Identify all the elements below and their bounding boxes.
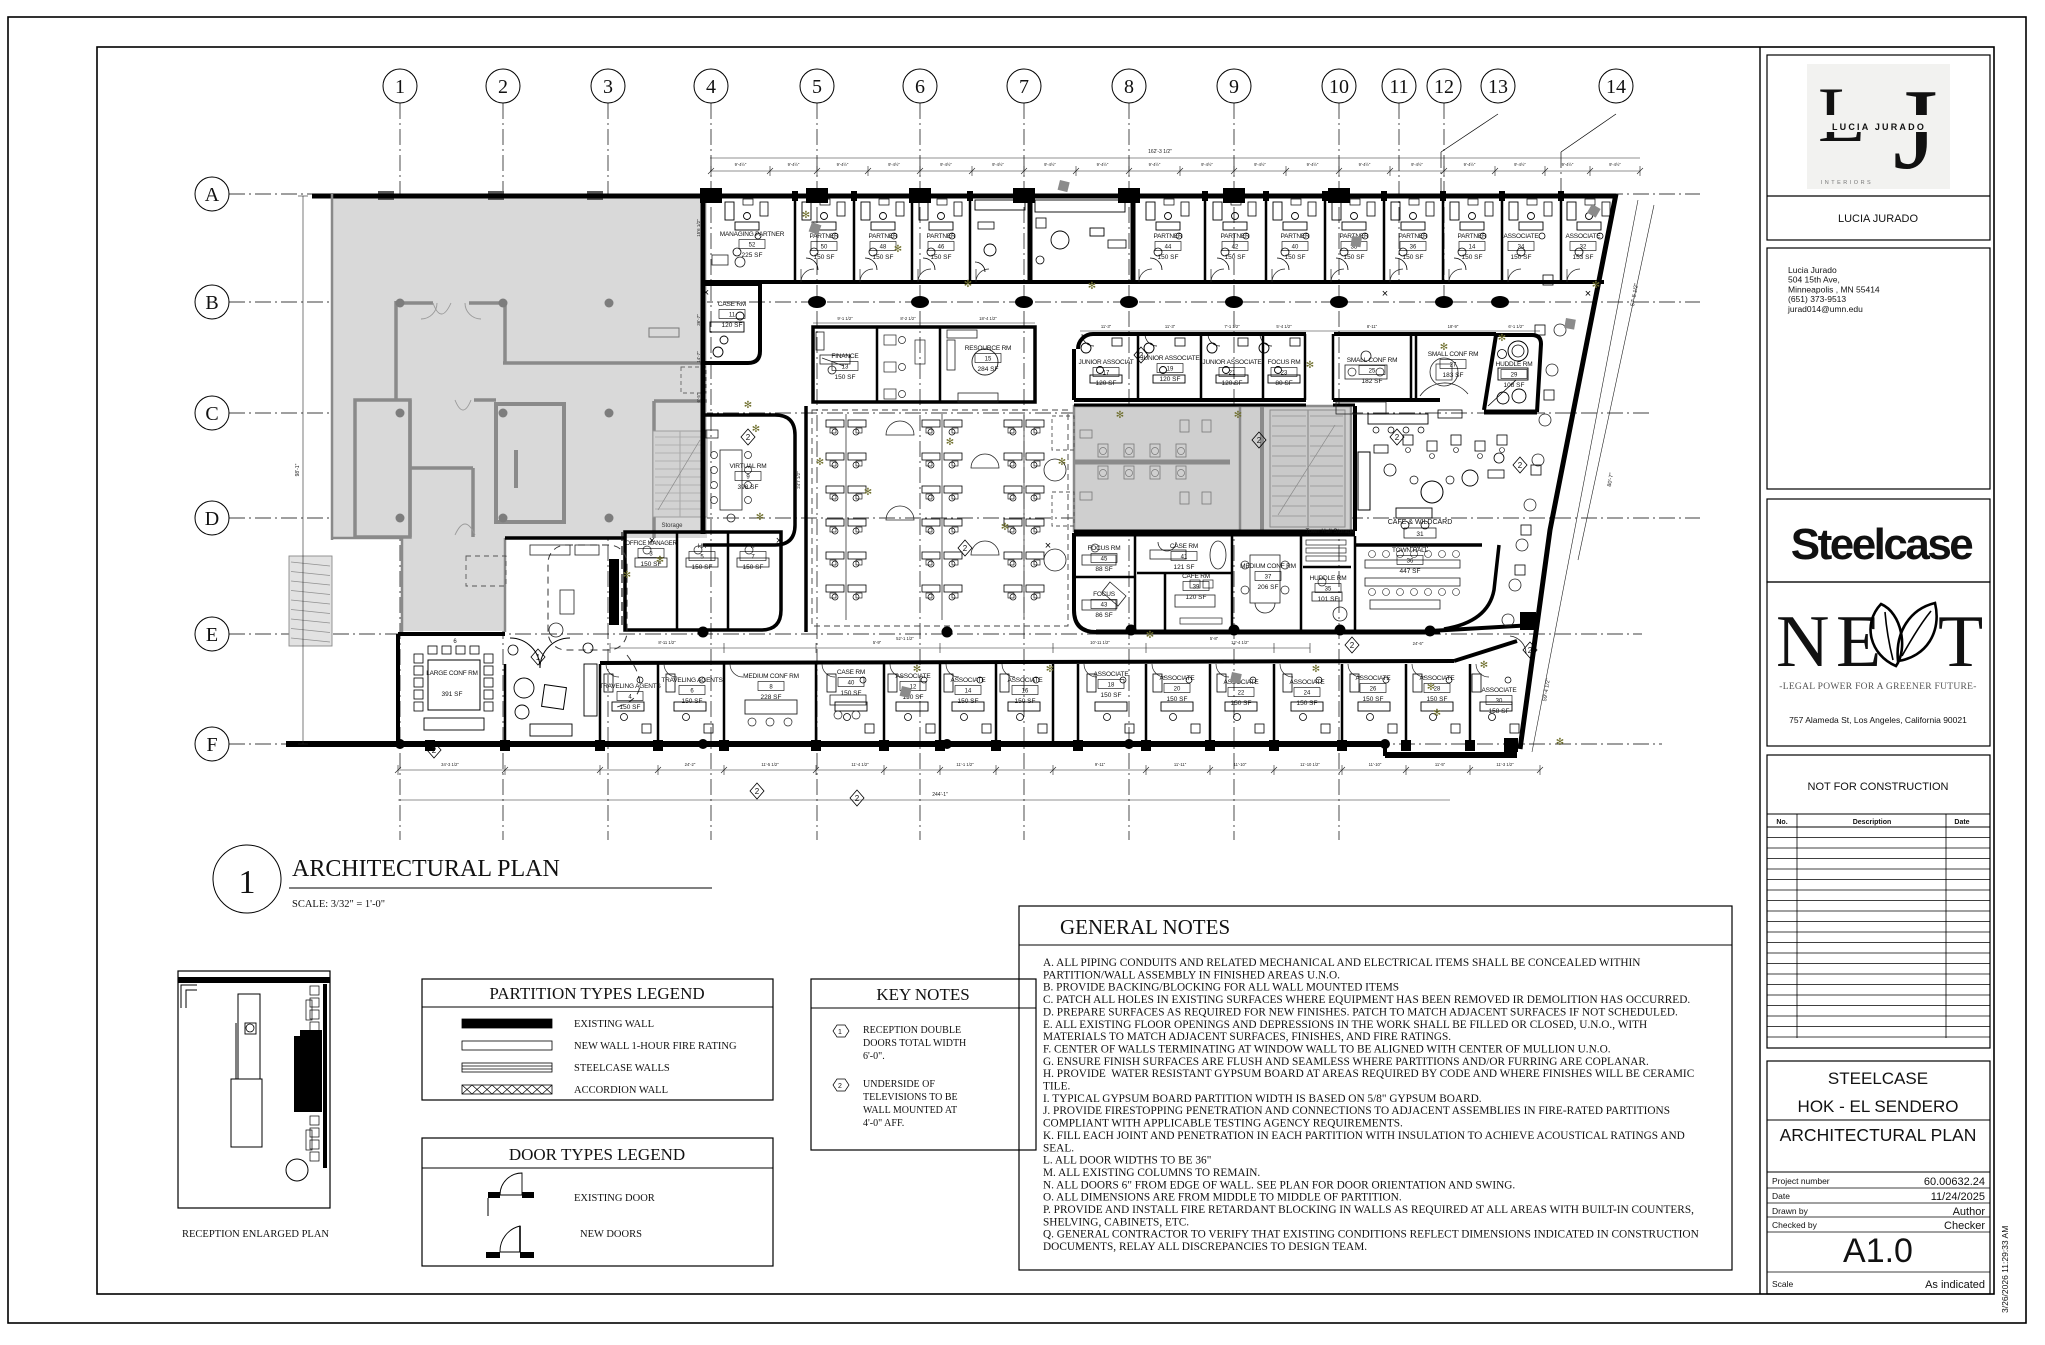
svg-text:✻: ✻ [1001, 522, 1009, 533]
svg-text:108 SF: 108 SF [1504, 382, 1525, 389]
svg-text:1: 1 [395, 76, 405, 98]
svg-text:✻: ✻ [1312, 664, 1320, 675]
svg-text:3: 3 [603, 76, 613, 98]
svg-text:ASSOCIATE: ASSOCIATE [1420, 675, 1456, 682]
svg-text:G. ENSURE FINISH SURFACES ARE: G. ENSURE FINISH SURFACES ARE FLUSH AND … [1043, 1056, 1649, 1068]
svg-text:Scale: Scale [1772, 1279, 1794, 1289]
svg-text:EXISTING WALL: EXISTING WALL [574, 1019, 654, 1030]
svg-text:101 SF: 101 SF [1318, 596, 1339, 603]
svg-text:SEAL.: SEAL. [1043, 1142, 1074, 1154]
svg-text:150 SF: 150 SF [1462, 254, 1483, 261]
svg-text:CASE RM: CASE RM [718, 301, 746, 308]
svg-text:8: 8 [1124, 76, 1134, 98]
svg-text:CASE RM: CASE RM [837, 669, 865, 676]
svg-text:8'-2 1/2": 8'-2 1/2" [900, 316, 916, 321]
svg-text:A. ALL PIPING CONDUITS AND REL: A. ALL PIPING CONDUITS AND RELATED MECHA… [1043, 957, 1640, 969]
svg-text:ASSOCIATE: ASSOCIATE [1008, 677, 1044, 684]
svg-text:✻: ✻ [1427, 682, 1435, 693]
svg-text:PARTNER: PARTNER [1153, 233, 1183, 240]
svg-text:ASSOCIATE: ASSOCIATE [1482, 687, 1518, 694]
svg-text:40: 40 [1292, 245, 1299, 251]
svg-text:6: 6 [690, 689, 694, 695]
svg-text:N. ALL DOORS 6" FROM EDGE OF W: N. ALL DOORS 6" FROM EDGE OF WALL. SEE P… [1043, 1179, 1515, 1191]
svg-text:M. ALL EXISTING COLUMNS TO REM: M. ALL EXISTING COLUMNS TO REMAIN. [1043, 1167, 1260, 1179]
svg-text:14: 14 [1469, 245, 1476, 251]
svg-text:PARTITION TYPES LEGEND: PARTITION TYPES LEGEND [489, 984, 704, 1003]
svg-text:80 SF: 80 SF [1275, 380, 1292, 387]
svg-text:As indicated: As indicated [1925, 1279, 1985, 1291]
svg-text:IT: IT [751, 544, 756, 550]
svg-text:24: 24 [1304, 691, 1311, 697]
svg-text:Drawn by: Drawn by [1772, 1206, 1809, 1216]
svg-text:No.: No. [1776, 819, 1787, 826]
svg-text:PARTNER: PARTNER [809, 233, 839, 240]
svg-text:57'-5 1/2": 57'-5 1/2" [1630, 283, 1640, 307]
svg-text:24'7 1/2": 24'7 1/2" [796, 471, 801, 489]
svg-text:150 SF: 150 SF [1101, 692, 1122, 699]
svg-text:150 SF: 150 SF [1403, 254, 1424, 261]
svg-text:9'-4½": 9'-4½" [1514, 162, 1526, 167]
svg-text:C: C [205, 403, 218, 425]
svg-text:FOCUS RM: FOCUS RM [1267, 359, 1300, 366]
svg-text:20: 20 [1174, 687, 1181, 693]
svg-text:✻: ✻ [1440, 342, 1448, 353]
svg-text:17: 17 [1103, 371, 1110, 377]
svg-text:44: 44 [1165, 245, 1172, 251]
svg-text:NOT FOR CONSTRUCTION: NOT FOR CONSTRUCTION [1808, 781, 1949, 793]
svg-text:10: 10 [1329, 76, 1349, 98]
svg-text:PARTNER: PARTNER [1457, 233, 1487, 240]
svg-text:6: 6 [915, 76, 925, 98]
svg-text:✻: ✻ [894, 244, 902, 255]
svg-text:Description: Description [1853, 819, 1892, 826]
svg-text:MEDIUM CONF RM: MEDIUM CONF RM [743, 673, 799, 680]
svg-text:T: T [1938, 601, 1983, 683]
svg-text:1: 1 [536, 653, 541, 662]
svg-text:PARTNER: PARTNER [1220, 233, 1250, 240]
svg-text:9'-4½": 9'-4½" [1044, 162, 1056, 167]
svg-text:13: 13 [842, 365, 849, 371]
svg-text:11'-10": 11'-10" [1369, 762, 1382, 767]
svg-text:✻: ✻ [744, 400, 752, 411]
svg-text:11: 11 [729, 313, 736, 319]
svg-text:7: 7 [751, 555, 755, 561]
svg-text:PARTNER: PARTNER [868, 233, 898, 240]
svg-text:150 SF: 150 SF [1285, 254, 1306, 261]
svg-text:×: × [649, 535, 655, 547]
svg-text:2: 2 [432, 746, 437, 755]
svg-text:11'-3": 11'-3" [1165, 324, 1176, 329]
svg-text:11'-1 1/2": 11'-1 1/2" [956, 762, 974, 767]
svg-text:DOCUMENTS, RELAY ALL DISCREPAN: DOCUMENTS, RELAY ALL DISCREPANCIES TO DE… [1043, 1241, 1367, 1253]
svg-text:LUCIA JURADO: LUCIA JURADO [1832, 122, 1926, 132]
svg-text:E: E [206, 624, 218, 646]
svg-text:9'-4½": 9'-4½" [940, 162, 952, 167]
svg-text:I. TYPICAL GYPSUM BOARD PARTIT: I. TYPICAL GYPSUM BOARD PARTITION WIDTH … [1043, 1093, 1482, 1105]
svg-text:×: × [1382, 288, 1388, 300]
svg-text:Town Hall Storage: Town Hall Storage [1306, 529, 1355, 535]
svg-text:PARTNER: PARTNER [1398, 233, 1428, 240]
svg-text:6: 6 [453, 639, 457, 645]
svg-text:59'-4 1/2": 59'-4 1/2" [1542, 678, 1552, 702]
svg-text:MEDIUM CONF RM: MEDIUM CONF RM [1240, 563, 1296, 570]
svg-text:×: × [776, 535, 782, 547]
svg-text:HUDDLE RM: HUDDLE RM [1496, 361, 1533, 368]
svg-text:12'-4 1/2": 12'-4 1/2" [1231, 640, 1249, 645]
svg-text:✻: ✻ [752, 424, 760, 435]
svg-text:Steelcase: Steelcase [1791, 520, 1973, 569]
svg-text:DOORS TOTAL WIDTH: DOORS TOTAL WIDTH [863, 1038, 966, 1049]
svg-text:88 SF: 88 SF [1095, 566, 1112, 573]
svg-text:UNDERSIDE OF: UNDERSIDE OF [863, 1079, 935, 1090]
svg-text:J. PROVIDE FIRESTOPPING PENETR: J. PROVIDE FIRESTOPPING PENETRATION AND … [1043, 1105, 1670, 1117]
svg-text:11'-3": 11'-3" [1101, 324, 1112, 329]
svg-text:B. PROVIDE BACKING/BLOCKING FO: B. PROVIDE BACKING/BLOCKING FOR ALL WALL… [1043, 982, 1399, 994]
svg-text:4: 4 [706, 76, 716, 98]
svg-text:27: 27 [1450, 363, 1457, 369]
svg-text:×: × [703, 287, 709, 299]
svg-text:23: 23 [1281, 371, 1288, 377]
svg-text:16: 16 [1022, 689, 1029, 695]
svg-text:120 SF: 120 SF [1222, 380, 1243, 387]
svg-text:Date: Date [1772, 1191, 1790, 1201]
svg-text:10'-11 1/2": 10'-11 1/2" [1090, 640, 1110, 645]
svg-text:PARTNER: PARTNER [926, 233, 956, 240]
svg-text:9: 9 [1229, 76, 1239, 98]
svg-text:SHELVING, CABINETS, ETC.: SHELVING, CABINETS, ETC. [1043, 1216, 1189, 1228]
svg-text:11'-10 1/2": 11'-10 1/2" [1300, 762, 1320, 767]
svg-text:JUNIOR ASSOCIAT: JUNIOR ASSOCIAT [1078, 359, 1133, 366]
svg-text:48: 48 [880, 245, 887, 251]
svg-text:✻: ✻ [756, 512, 764, 523]
svg-text:✻: ✻ [1234, 410, 1242, 421]
svg-text:150 SF: 150 SF [692, 564, 713, 571]
svg-text:JUNIOR ASSOCIATE: JUNIOR ASSOCIATE [1202, 359, 1262, 366]
svg-text:MATERIALS TO MATCH ADJACENT SU: MATERIALS TO MATCH ADJACENT SURFACES, FI… [1043, 1031, 1451, 1043]
svg-text:LUCIA JURADO: LUCIA JURADO [1838, 213, 1919, 225]
svg-text:11'-5": 11'-5" [1435, 762, 1446, 767]
svg-text:21: 21 [1229, 371, 1236, 377]
svg-text:✻: ✻ [1306, 360, 1314, 371]
svg-text:120 SF: 120 SF [1186, 594, 1207, 601]
svg-text:11: 11 [1389, 76, 1408, 98]
svg-text:9'-4½": 9'-4½" [1411, 162, 1423, 167]
svg-text:150 SF: 150 SF [1511, 254, 1532, 261]
svg-text:EXISTING DOOR: EXISTING DOOR [574, 1193, 655, 1204]
svg-text:50: 50 [821, 245, 828, 251]
svg-text:52: 52 [749, 243, 756, 249]
svg-text:ACCORDION WALL: ACCORDION WALL [574, 1085, 668, 1096]
svg-text:32: 32 [1580, 245, 1587, 251]
svg-text:8'-11": 8'-11" [1367, 324, 1378, 329]
svg-text:150 SF: 150 SF [1225, 254, 1246, 261]
svg-text:ARCHITECTURAL PLAN: ARCHITECTURAL PLAN [1780, 1125, 1977, 1145]
svg-text:11'-3 1/2": 11'-3 1/2" [1496, 762, 1514, 767]
svg-text:150 SF: 150 SF [1363, 696, 1384, 703]
svg-text:9'-4½": 9'-4½" [888, 162, 900, 167]
svg-text:26: 26 [1370, 687, 1377, 693]
svg-text:N: N [1776, 601, 1829, 683]
svg-text:CASE RM: CASE RM [1170, 543, 1198, 550]
svg-text:Date: Date [1954, 819, 1969, 826]
svg-text:TOWN HALL: TOWN HALL [1392, 547, 1429, 554]
svg-text:24'-6": 24'-6" [1413, 641, 1424, 646]
svg-text:5: 5 [700, 555, 704, 561]
svg-text:2: 2 [1257, 436, 1262, 445]
svg-text:2: 2 [963, 544, 968, 553]
svg-text:MANAGING PARTNER: MANAGING PARTNER [720, 231, 785, 238]
svg-text:4'-0" AFF.: 4'-0" AFF. [863, 1118, 904, 1129]
svg-text:FOCUS RM: FOCUS RM [1087, 545, 1120, 552]
svg-text:120 SF: 120 SF [722, 322, 743, 329]
svg-text:35: 35 [1325, 587, 1332, 593]
svg-text:2: 2 [746, 433, 751, 442]
svg-text:RECEPTION DOUBLE: RECEPTION DOUBLE [863, 1025, 961, 1036]
svg-text:RECEPTION ENLARGED PLAN: RECEPTION ENLARGED PLAN [182, 1229, 329, 1240]
svg-text:14: 14 [965, 689, 972, 695]
svg-text:284 SF: 284 SF [978, 366, 999, 373]
svg-text:8: 8 [769, 685, 773, 691]
svg-text:KEY NOTES: KEY NOTES [876, 985, 969, 1004]
svg-text:391 SF: 391 SF [442, 691, 463, 698]
svg-text:ASSOCIATE: ASSOCIATE [1566, 233, 1602, 240]
svg-text:30: 30 [1496, 699, 1503, 705]
svg-text:206 SF: 206 SF [1258, 584, 1279, 591]
svg-text:✻: ✻ [1058, 457, 1066, 468]
svg-text:9'-4½": 9'-4½" [1201, 162, 1213, 167]
svg-text:✻: ✻ [1088, 281, 1096, 292]
svg-text:9'-4½": 9'-4½" [1359, 162, 1371, 167]
svg-text:150 SF: 150 SF [931, 254, 952, 261]
svg-text:120 SF: 120 SF [1160, 376, 1181, 383]
svg-text:29: 29 [1511, 373, 1518, 379]
svg-text:158 SF: 158 SF [1489, 708, 1510, 715]
svg-text:E. ALL EXISTING FLOOR OPENINGS: E. ALL EXISTING FLOOR OPENINGS AND DEPRE… [1043, 1019, 1647, 1031]
svg-text:13: 13 [1488, 76, 1508, 98]
svg-text:2: 2 [498, 76, 508, 98]
svg-text:46: 46 [938, 245, 945, 251]
svg-text:162'-3 1/2": 162'-3 1/2" [1148, 149, 1172, 155]
svg-text:41: 41 [1181, 555, 1188, 561]
svg-text:ASSOCIATE: ASSOCIATE [1504, 233, 1540, 240]
svg-text:5'-4 1/2": 5'-4 1/2" [1276, 324, 1292, 329]
svg-text:2: 2 [755, 787, 760, 796]
svg-text:HR: HR [698, 544, 707, 550]
svg-text:jurad014@umn.edu: jurad014@umn.edu [1787, 304, 1863, 314]
svg-text:9'-4½": 9'-4½" [1307, 162, 1319, 167]
svg-text:9'-4½": 9'-4½" [837, 162, 849, 167]
svg-text:F: F [206, 734, 217, 756]
svg-text:150 SF: 150 SF [1297, 700, 1318, 707]
svg-text:HOK - EL SENDERO: HOK - EL SENDERO [1798, 1097, 1959, 1116]
svg-text:45: 45 [1101, 557, 1108, 563]
svg-text:12: 12 [1434, 76, 1454, 98]
svg-text:225 SF: 225 SF [742, 252, 763, 259]
svg-text:34: 34 [1518, 245, 1525, 251]
svg-text:3: 3 [649, 552, 653, 558]
svg-text:37: 37 [1265, 575, 1272, 581]
svg-text:25: 25 [1369, 369, 1376, 375]
svg-text:✻: ✻ [1498, 333, 1506, 344]
svg-text:42: 42 [1232, 245, 1239, 251]
svg-text:3/26/2026 11:29:33 AM: 3/26/2026 11:29:33 AM [2000, 1226, 2010, 1313]
svg-text:SCALE: 3/32" = 1'-0": SCALE: 3/32" = 1'-0" [292, 899, 385, 910]
svg-text:6'-5": 6'-5" [696, 393, 701, 402]
svg-text:34'-3 1/2": 34'-3 1/2" [441, 762, 459, 767]
svg-text:ASSOCIATE: ASSOCIATE [1290, 679, 1326, 686]
svg-text:153 SF: 153 SF [1573, 254, 1594, 261]
svg-text:2: 2 [1350, 641, 1355, 650]
svg-text:Lucia Jurado: Lucia Jurado [1788, 265, 1837, 275]
svg-text:✻: ✻ [1146, 630, 1154, 641]
svg-text:7: 7 [1019, 76, 1029, 98]
svg-text:VIRTUAL RM: VIRTUAL RM [729, 463, 766, 470]
svg-text:9'-11": 9'-11" [1095, 762, 1106, 767]
svg-text:244'-1": 244'-1" [932, 792, 948, 798]
svg-text:98'-1": 98'-1" [295, 463, 301, 476]
svg-text:150 SF: 150 SF [958, 698, 979, 705]
svg-text:39: 39 [1193, 585, 1200, 591]
svg-text:ARCHITECTURAL PLAN: ARCHITECTURAL PLAN [292, 856, 560, 882]
svg-text:36: 36 [1410, 245, 1417, 251]
svg-text:ASSOCIATE: ASSOCIATE [1224, 679, 1260, 686]
svg-text:43: 43 [1101, 603, 1108, 609]
svg-text:9'-4½": 9'-4½" [1562, 162, 1574, 167]
svg-text:14: 14 [1606, 76, 1626, 98]
svg-text:15'6 1/2": 15'6 1/2" [696, 219, 701, 237]
svg-text:120 SF: 120 SF [1096, 380, 1117, 387]
svg-text:NEW WALL 1-HOUR FIRE RATING: NEW WALL 1-HOUR FIRE RATING [574, 1041, 737, 1052]
svg-text:✻: ✻ [946, 437, 954, 448]
svg-text:150 SF: 150 SF [835, 374, 856, 381]
svg-text:9: 9 [746, 475, 750, 481]
svg-text:Checker: Checker [1944, 1220, 1985, 1232]
svg-text:9'-1 1/2": 9'-1 1/2" [837, 316, 853, 321]
svg-text:2: 2 [1395, 433, 1400, 442]
svg-text:150 SF: 150 SF [682, 698, 703, 705]
svg-text:✻: ✻ [864, 487, 872, 498]
svg-text:11/24/2025: 11/24/2025 [1931, 1191, 1985, 1203]
svg-text:7'-1 1/2": 7'-1 1/2" [1224, 324, 1240, 329]
svg-text:Q. GENERAL CONTRACTOR TO VERIF: Q. GENERAL CONTRACTOR TO VERIFY THAT EXI… [1043, 1229, 1699, 1241]
svg-text:447 SF: 447 SF [1400, 568, 1421, 575]
svg-text:150 SF: 150 SF [1158, 254, 1179, 261]
svg-text:398 SF: 398 SF [738, 484, 759, 491]
svg-text:D: D [205, 508, 219, 530]
svg-text:9'-4½": 9'-4½" [992, 162, 1004, 167]
svg-text:WALL MOUNTED AT: WALL MOUNTED AT [863, 1105, 957, 1116]
svg-text:2: 2 [1139, 351, 1144, 360]
svg-text:COMPLIANT WITH APPLICABLE TEST: COMPLIANT WITH APPLICABLE TESTING AGENCY… [1043, 1118, 1403, 1130]
svg-text:86 SF: 86 SF [1095, 612, 1112, 619]
svg-text:9'-4½": 9'-4½" [1097, 162, 1109, 167]
svg-text:O. ALL DIMENSIONS ARE FROM MID: O. ALL DIMENSIONS ARE FROM MIDDLE TO MID… [1043, 1192, 1402, 1204]
svg-text:80'-7": 80'-7" [1607, 472, 1615, 487]
svg-text:×: × [1585, 288, 1591, 300]
svg-text:150 SF: 150 SF [1231, 700, 1252, 707]
svg-text:9'-4½": 9'-4½" [1464, 162, 1476, 167]
svg-text:✻: ✻ [816, 457, 824, 468]
svg-text:PARTITION/WALL ASSEMBLY IN FIN: PARTITION/WALL ASSEMBLY IN FINISHED AREA… [1043, 969, 1340, 981]
svg-text:2: 2 [1528, 646, 1533, 655]
svg-text:P. PROVIDE AND INSTALL FIRE RE: P. PROVIDE AND INSTALL FIRE RETARDANT BL… [1043, 1204, 1694, 1216]
svg-text:150 SF: 150 SF [873, 254, 894, 261]
svg-text:14'-7": 14'-7" [696, 351, 701, 363]
svg-text:LARGE CONF RM: LARGE CONF RM [426, 670, 478, 677]
svg-text:TRAVELING AGENTS: TRAVELING AGENTS [599, 683, 661, 690]
svg-text:L. ALL DOOR WIDTHS TO BE 36": L. ALL DOOR WIDTHS TO BE 36" [1043, 1155, 1211, 1167]
svg-text:150 SF: 150 SF [1344, 254, 1365, 261]
svg-text:✻: ✻ [964, 279, 972, 290]
svg-text:6'-0".: 6'-0". [863, 1051, 885, 1062]
svg-text:22: 22 [1238, 691, 1245, 697]
svg-text:✻: ✻ [1592, 280, 1600, 291]
svg-text:Checked by: Checked by [1772, 1220, 1818, 1230]
svg-text:18'-4 1/2": 18'-4 1/2" [979, 316, 997, 321]
svg-text:8'-11 1/2": 8'-11 1/2" [658, 640, 676, 645]
svg-text:31: 31 [1416, 531, 1424, 538]
svg-text:5'-9": 5'-9" [873, 640, 882, 645]
svg-text:36: 36 [1407, 559, 1414, 565]
svg-text:24'-2": 24'-2" [685, 762, 696, 767]
svg-text:2: 2 [1518, 461, 1523, 470]
svg-text:SMALL CONF RM: SMALL CONF RM [1428, 351, 1479, 358]
svg-text:F. CENTER OF WALLS TERMINATING: F. CENTER OF WALLS TERMINATING AT WINDOW… [1043, 1043, 1611, 1055]
svg-text:CAFE RM: CAFE RM [1182, 573, 1210, 580]
svg-text:18: 18 [1108, 683, 1115, 689]
svg-text:ASSOCIATE: ASSOCIATE [1094, 671, 1130, 678]
svg-text:A: A [205, 184, 220, 206]
svg-text:1: 1 [838, 1029, 842, 1036]
svg-text:H. PROVIDE WATER RESISTANT GY: H. PROVIDE WATER RESISTANT GYPSUM BOARD … [1043, 1068, 1694, 1080]
svg-text:TRAVELING AGENTS: TRAVELING AGENTS [661, 677, 723, 684]
svg-text:(651) 373-9513: (651) 373-9513 [1788, 294, 1846, 304]
svg-text:STEELCASE: STEELCASE [1828, 1069, 1928, 1088]
svg-text:✻: ✻ [1480, 660, 1488, 671]
svg-text:✻: ✻ [656, 555, 664, 566]
svg-text:K. FILL EACH JOINT AND PENETRA: K. FILL EACH JOINT AND PENETRATION IN EA… [1043, 1130, 1685, 1142]
svg-text:150 SF: 150 SF [743, 564, 764, 571]
svg-text:Project number: Project number [1772, 1176, 1830, 1186]
svg-text:✻: ✻ [1433, 708, 1441, 719]
svg-text:228 SF: 228 SF [761, 694, 782, 701]
svg-text:40: 40 [848, 681, 855, 687]
svg-text:36'-7": 36'-7" [696, 314, 701, 326]
svg-text:757 Alameda St, Los Angeles, C: 757 Alameda St, Los Angeles, California … [1789, 715, 1967, 725]
svg-text:15: 15 [985, 357, 992, 363]
svg-text:CAFE & WILDCARD: CAFE & WILDCARD [1388, 519, 1453, 526]
svg-text:A1.0: A1.0 [1843, 1232, 1913, 1270]
svg-text:✻: ✻ [1046, 664, 1054, 675]
svg-text:150 SF: 150 SF [1427, 696, 1448, 703]
svg-text:9'-4½": 9'-4½" [1254, 162, 1266, 167]
svg-text:150 SF: 150 SF [1167, 696, 1188, 703]
svg-text:RESOURCE RM: RESOURCE RM [965, 345, 1012, 352]
svg-text:×: × [1045, 540, 1051, 552]
svg-text:NEW DOORS: NEW DOORS [580, 1229, 642, 1240]
svg-text:1: 1 [239, 864, 256, 901]
svg-text:STEELCASE WALLS: STEELCASE WALLS [574, 1063, 670, 1074]
svg-text:GENERAL NOTES: GENERAL NOTES [1060, 915, 1230, 939]
svg-text:C. PATCH ALL HOLES IN EXISTING: C. PATCH ALL HOLES IN EXISTING SURFACES … [1043, 994, 1690, 1006]
svg-text:ASSOCIATE: ASSOCIATE [951, 677, 987, 684]
svg-text:11'-5 1/2": 11'-5 1/2" [761, 762, 779, 767]
svg-text:✻: ✻ [1116, 410, 1124, 421]
svg-text:✻: ✻ [623, 570, 631, 581]
svg-text:FINANCE: FINANCE [831, 353, 859, 360]
svg-text:ASSOCIATE: ASSOCIATE [1160, 675, 1196, 682]
svg-text:✻: ✻ [802, 210, 810, 221]
